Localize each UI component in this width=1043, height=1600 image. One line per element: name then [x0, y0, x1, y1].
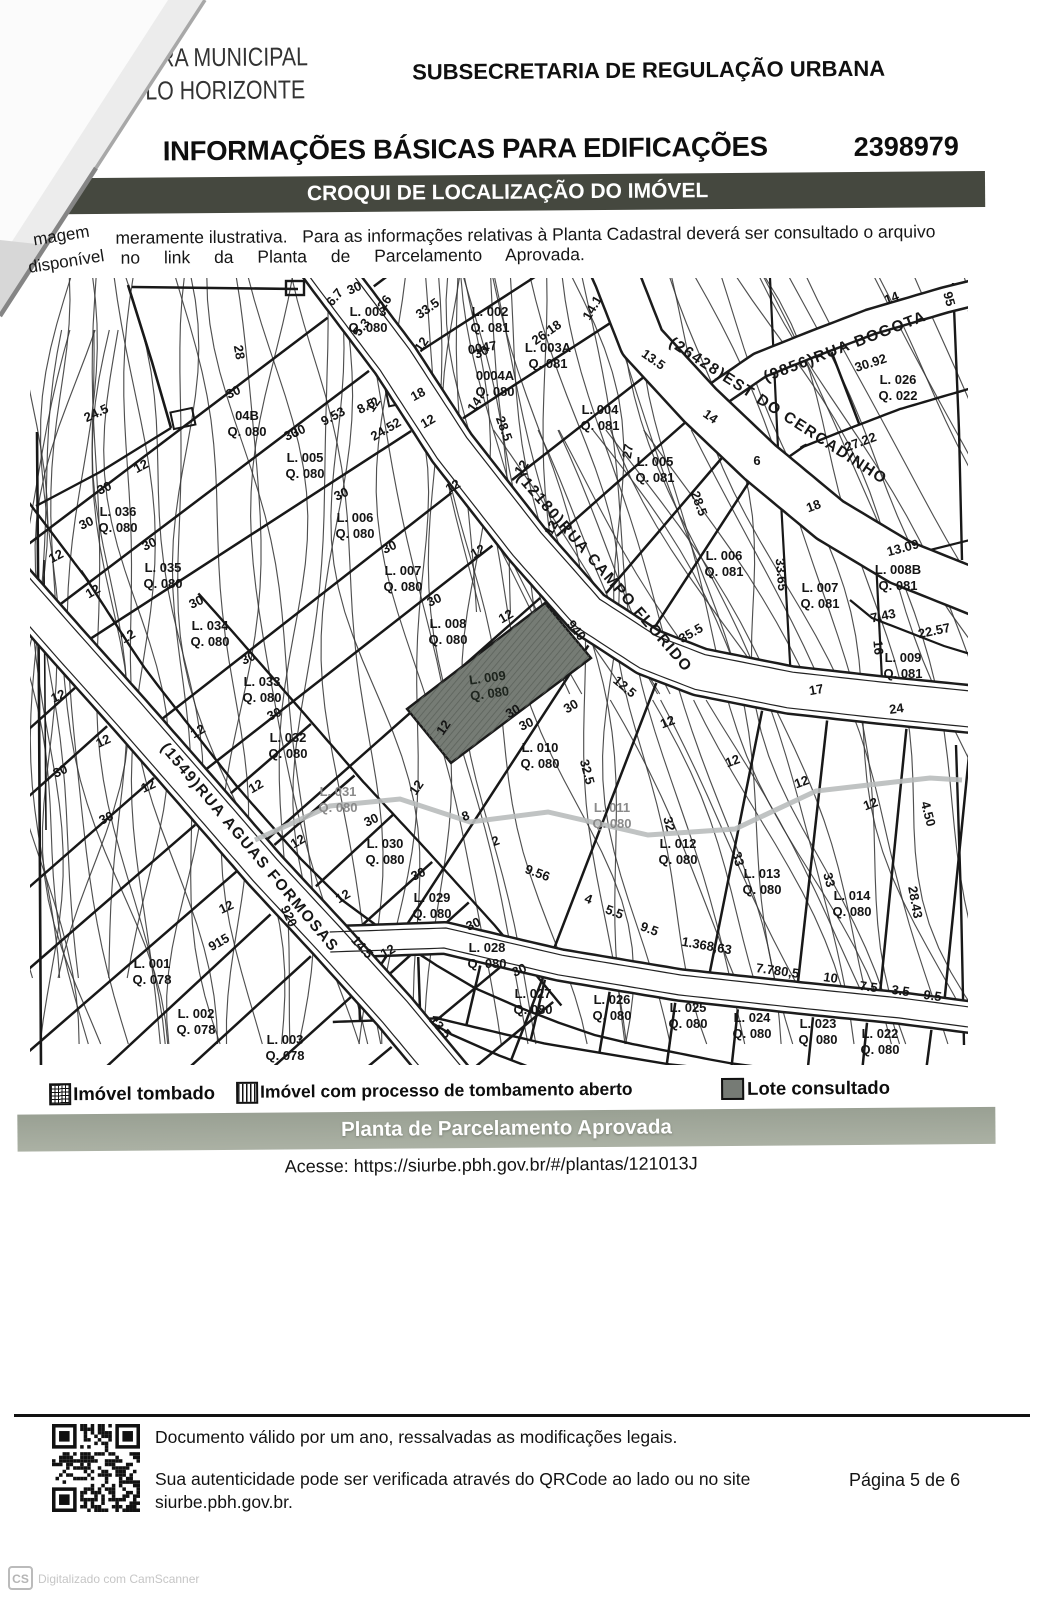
svg-text:30: 30 [238, 648, 257, 668]
svg-text:30: 30 [76, 513, 95, 533]
svg-text:Q. 080: Q. 080 [592, 1008, 631, 1023]
svg-text:L. 007: L. 007 [802, 580, 839, 595]
svg-text:Q. 081: Q. 081 [635, 470, 674, 485]
svg-text:L. 026: L. 026 [880, 372, 917, 387]
svg-text:30: 30 [186, 592, 205, 612]
svg-text:9.56: 9.56 [523, 861, 552, 884]
svg-text:L. 012: L. 012 [660, 836, 697, 851]
svg-text:12: 12 [216, 897, 235, 917]
svg-text:Q. 081: Q. 081 [528, 356, 567, 371]
svg-text:5.5: 5.5 [603, 902, 625, 922]
svg-text:6: 6 [753, 453, 760, 468]
svg-text:Q. 080: Q. 080 [335, 526, 374, 541]
svg-text:0004A: 0004A [476, 368, 515, 383]
svg-text:1.368,63: 1.368,63 [681, 934, 733, 958]
svg-text:L. 008: L. 008 [430, 616, 467, 631]
svg-text:10: 10 [822, 969, 838, 986]
svg-text:L. 011: L. 011 [594, 800, 630, 815]
svg-text:16: 16 [870, 640, 886, 656]
svg-text:L. 025: L. 025 [670, 1000, 707, 1015]
svg-text:04B: 04B [235, 408, 259, 423]
svg-text:Q. 080: Q. 080 [412, 906, 451, 921]
svg-text:Q. 080: Q. 080 [798, 1032, 837, 1047]
svg-text:L. 022: L. 022 [862, 1026, 899, 1041]
svg-text:L. 033: L. 033 [244, 674, 281, 689]
svg-text:L. 034: L. 034 [192, 618, 230, 633]
svg-text:L. 003A: L. 003A [525, 340, 572, 355]
svg-text:Q. 078: Q. 078 [132, 972, 171, 987]
svg-text:3.5: 3.5 [891, 982, 911, 999]
svg-text:L. 028: L. 028 [469, 940, 506, 955]
svg-text:30: 30 [139, 534, 158, 554]
svg-text:Q. 080: Q. 080 [658, 852, 697, 867]
svg-text:Q. 080: Q. 080 [732, 1026, 771, 1041]
svg-text:Q. 080: Q. 080 [860, 1042, 899, 1057]
svg-text:27: 27 [619, 443, 636, 460]
svg-text:L. 007: L. 007 [385, 563, 422, 578]
svg-text:Q. 081: Q. 081 [878, 578, 917, 593]
svg-text:7.43: 7.43 [869, 606, 897, 626]
svg-text:L. 024: L. 024 [734, 1010, 772, 1025]
svg-text:L. 010: L. 010 [522, 740, 559, 755]
svg-text:30: 30 [424, 590, 443, 610]
svg-text:12: 12 [861, 794, 880, 813]
svg-text:33: 33 [820, 871, 838, 889]
svg-text:28.43: 28.43 [905, 885, 925, 920]
svg-text:L. 002: L. 002 [178, 1006, 215, 1021]
svg-text:Q. 081: Q. 081 [580, 418, 619, 433]
svg-text:24: 24 [888, 700, 905, 717]
svg-text:Q. 081: Q. 081 [800, 596, 839, 611]
svg-text:L. 005: L. 005 [287, 450, 324, 465]
svg-text:Q. 080: Q. 080 [668, 1016, 707, 1031]
svg-text:12: 12 [138, 776, 157, 796]
svg-text:L. 001: L. 001 [134, 956, 171, 971]
svg-text:12: 12 [93, 731, 112, 751]
svg-text:L. 036: L. 036 [100, 504, 137, 519]
svg-text:L. 030: L. 030 [367, 836, 404, 851]
svg-text:Q. 080: Q. 080 [227, 424, 266, 439]
svg-text:Q. 080: Q. 080 [268, 746, 307, 761]
svg-text:L. 006: L. 006 [337, 510, 374, 525]
svg-text:28.5: 28.5 [688, 489, 711, 518]
svg-text:Q. 080: Q. 080 [285, 466, 324, 481]
svg-text:12: 12 [333, 886, 353, 906]
svg-text:915: 915 [206, 930, 232, 954]
svg-text:L. 004: L. 004 [582, 402, 620, 417]
svg-text:30: 30 [379, 537, 398, 557]
svg-text:Q. 080: Q. 080 [592, 816, 631, 831]
svg-text:Q. 080: Q. 080 [143, 576, 182, 591]
svg-text:Q. 080: Q. 080 [242, 690, 281, 705]
svg-text:Q. 022: Q. 022 [878, 388, 917, 403]
svg-text:L. 031: L. 031 [320, 784, 357, 799]
svg-text:4: 4 [583, 890, 596, 907]
svg-text:Q. 080: Q. 080 [520, 756, 559, 771]
svg-text:L. 008B: L. 008B [875, 562, 921, 577]
svg-text:9.5: 9.5 [638, 919, 660, 939]
svg-text:32.5: 32.5 [577, 758, 598, 786]
svg-text:L. 005: L. 005 [637, 454, 674, 469]
svg-text:30: 30 [561, 696, 581, 716]
svg-text:Q. 078: Q. 078 [265, 1048, 304, 1063]
svg-text:L. 014: L. 014 [834, 888, 872, 903]
svg-text:4.50: 4.50 [918, 800, 939, 828]
svg-text:(1549)RUA AGUAS FORMOSAS: (1549)RUA AGUAS FORMOSAS [157, 740, 342, 956]
svg-text:Q. 081: Q. 081 [470, 320, 509, 335]
svg-text:0047: 0047 [467, 338, 498, 358]
svg-text:L. 023: L. 023 [800, 1016, 837, 1031]
svg-text:L. 026: L. 026 [594, 992, 631, 1007]
svg-text:Q. 080: Q. 080 [475, 384, 514, 399]
svg-text:30: 30 [331, 484, 350, 504]
svg-text:L. 006: L. 006 [706, 548, 743, 563]
svg-text:Q. 080: Q. 080 [832, 904, 871, 919]
svg-text:33.65: 33.65 [773, 558, 791, 592]
svg-text:L. 003: L. 003 [267, 1032, 304, 1047]
svg-text:L. 035: L. 035 [145, 560, 182, 575]
svg-text:17: 17 [808, 681, 825, 698]
svg-text:L. 009: L. 009 [885, 650, 922, 665]
svg-text:33.5: 33.5 [413, 295, 442, 322]
svg-text:L. 013: L. 013 [744, 866, 781, 881]
svg-text:Q. 078: Q. 078 [176, 1022, 215, 1037]
svg-text:Q. 080: Q. 080 [383, 579, 422, 594]
svg-text:Q. 080: Q. 080 [190, 634, 229, 649]
svg-text:L. 032: L. 032 [270, 730, 307, 745]
svg-text:L. 027: L. 027 [515, 986, 552, 1001]
svg-text:L. 029: L. 029 [414, 890, 451, 905]
svg-text:Q. 080: Q. 080 [428, 632, 467, 647]
svg-text:Q. 080: Q. 080 [513, 1002, 552, 1017]
svg-text:7.5: 7.5 [859, 978, 879, 995]
svg-text:2: 2 [489, 832, 501, 849]
svg-text:Q. 080: Q. 080 [98, 520, 137, 535]
svg-text:Q. 081: Q. 081 [883, 666, 922, 681]
svg-text:12: 12 [188, 721, 208, 741]
svg-text:Q. 080: Q. 080 [318, 800, 357, 815]
svg-text:Q. 081: Q. 081 [704, 564, 743, 579]
svg-text:22.57: 22.57 [917, 620, 952, 641]
svg-text:9.5: 9.5 [923, 987, 943, 1004]
svg-text:L. 002: L. 002 [472, 304, 509, 319]
svg-text:Q. 080: Q. 080 [467, 956, 506, 971]
svg-text:30: 30 [361, 810, 380, 830]
svg-text:Q. 080: Q. 080 [742, 882, 781, 897]
svg-text:Q. 080: Q. 080 [365, 852, 404, 867]
